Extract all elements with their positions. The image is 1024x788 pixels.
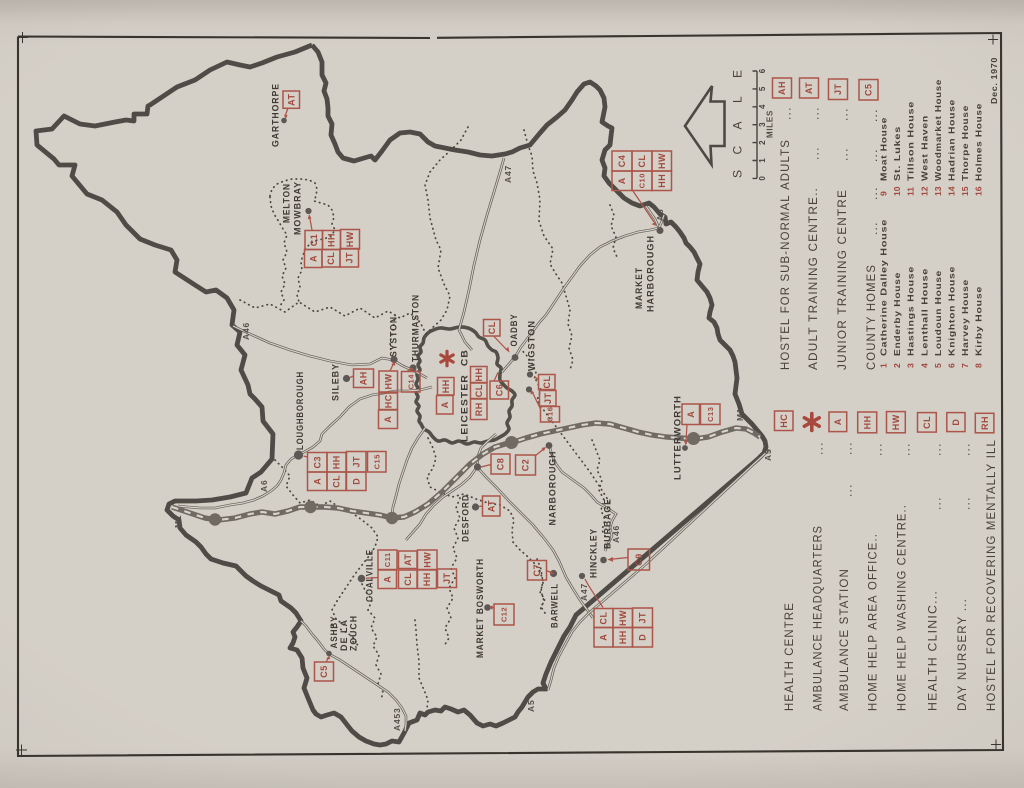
svg-text:D: D	[638, 634, 648, 641]
svg-text:CL: CL	[922, 416, 932, 429]
svg-text:CL: CL	[326, 252, 336, 265]
svg-text:12: 12	[919, 186, 929, 196]
svg-text:M1: M1	[173, 515, 183, 528]
svg-text:MARKET BOSWORTH: MARKET BOSWORTH	[475, 558, 485, 658]
svg-text:HH: HH	[422, 572, 432, 586]
svg-text:MOWBRAY: MOWBRAY	[293, 181, 303, 235]
svg-text:C: C	[731, 145, 745, 155]
svg-text:Loudoun House: Loudoun House	[933, 270, 943, 356]
svg-text:Catherine Dalley House: Catherine Dalley House	[879, 219, 889, 356]
svg-text:HW: HW	[618, 610, 628, 626]
svg-text:S: S	[731, 169, 745, 178]
svg-text:M1: M1	[735, 408, 745, 421]
svg-text:C3: C3	[312, 456, 322, 469]
svg-text:...: ...	[841, 441, 855, 455]
svg-text:...: ...	[808, 146, 822, 160]
svg-text:Moat House: Moat House	[879, 117, 889, 181]
svg-text:C11: C11	[383, 552, 392, 567]
svg-text:St. Lukes: St. Lukes	[892, 126, 902, 181]
svg-text:SYSTON: SYSTON	[389, 316, 399, 357]
svg-text:C1: C1	[309, 234, 319, 247]
svg-text:HEALTH CLINIC...: HEALTH CLINIC...	[926, 590, 940, 711]
svg-text:HEALTH CENTRE: HEALTH CENTRE	[782, 602, 796, 711]
svg-text:0: 0	[758, 176, 767, 181]
svg-text:HW: HW	[657, 153, 667, 169]
svg-text:HOSTEL FOR SUB-NORMAL ADULTS: HOSTEL FOR SUB-NORMAL ADULTS	[778, 139, 792, 370]
svg-text:...: ...	[808, 106, 822, 120]
svg-text:Harvey House: Harvey House	[960, 279, 970, 356]
svg-text:...: ...	[930, 442, 944, 456]
svg-text:AMBULANCE STATION: AMBULANCE STATION	[837, 568, 851, 711]
svg-text:Hastings House: Hastings House	[906, 266, 916, 356]
svg-text:AT: AT	[286, 93, 296, 105]
svg-text:THURMASTON: THURMASTON	[411, 294, 421, 362]
svg-text:2: 2	[758, 140, 767, 145]
svg-text:C10: C10	[638, 173, 647, 188]
svg-text:JT: JT	[442, 572, 452, 584]
svg-text:1: 1	[879, 363, 889, 368]
svg-text:RH: RH	[980, 416, 990, 430]
svg-text:C6: C6	[494, 384, 504, 397]
svg-text:NARBOROUGH: NARBOROUGH	[548, 451, 558, 526]
svg-text:HW: HW	[345, 231, 355, 247]
svg-text:A: A	[383, 416, 393, 423]
svg-text:WIGSTON: WIGSTON	[527, 320, 537, 371]
svg-text:...: ...	[959, 442, 973, 456]
svg-text:JUNIOR TRAINING CENTRE: JUNIOR TRAINING CENTRE	[835, 189, 849, 370]
svg-text:Kirby House: Kirby House	[974, 286, 984, 356]
svg-text:Lenthall House: Lenthall House	[919, 268, 929, 356]
svg-text:CL: CL	[599, 612, 609, 625]
svg-text:CL: CL	[332, 475, 342, 488]
svg-text:AT: AT	[804, 82, 814, 94]
svg-text:HW: HW	[422, 552, 432, 568]
svg-text:A: A	[312, 478, 322, 485]
svg-text:MARKET: MARKET	[634, 267, 644, 309]
svg-text:A47: A47	[579, 583, 589, 601]
svg-text:AH: AH	[777, 81, 787, 95]
svg-text:COALVILLE: COALVILLE	[365, 549, 375, 602]
svg-text:...: ...	[812, 441, 826, 455]
svg-text:15: 15	[960, 186, 970, 196]
svg-text:11: 11	[906, 187, 916, 196]
svg-text:A5: A5	[526, 700, 536, 712]
svg-text:A47: A47	[503, 165, 513, 183]
svg-text:...: ...	[841, 483, 855, 497]
svg-text:A: A	[599, 634, 609, 641]
svg-text:...: ...	[780, 106, 794, 120]
svg-text:HW: HW	[383, 374, 393, 390]
svg-text:6: 6	[758, 68, 767, 73]
svg-text:HH: HH	[474, 368, 484, 382]
svg-text:C14: C14	[406, 374, 415, 390]
svg-text:5: 5	[758, 86, 767, 91]
svg-text:AT: AT	[486, 500, 496, 512]
svg-text:4: 4	[758, 104, 767, 109]
svg-text:7: 7	[960, 363, 970, 368]
svg-text:CL: CL	[637, 155, 647, 168]
svg-text:OADBY: OADBY	[509, 314, 519, 347]
svg-text:HOME HELP AREA OFFICE..: HOME HELP AREA OFFICE..	[866, 533, 880, 711]
svg-text:A: A	[382, 576, 392, 583]
svg-text:13: 13	[933, 186, 943, 196]
svg-text:...: ...	[871, 442, 885, 456]
svg-text:DE LA: DE LA	[339, 619, 349, 651]
svg-text:C4: C4	[617, 155, 627, 168]
svg-text:MILES: MILES	[765, 110, 775, 138]
svg-text:JT: JT	[344, 252, 354, 264]
svg-text:CL: CL	[403, 573, 413, 586]
svg-text:14: 14	[947, 186, 957, 196]
svg-text:AH: AH	[359, 371, 369, 385]
svg-text:COUNTY HOMES: COUNTY HOMES	[864, 264, 878, 370]
svg-text:ADULT TRAINING CENTRE..: ADULT TRAINING CENTRE..	[806, 187, 820, 370]
svg-text:A: A	[731, 120, 745, 129]
svg-text:HOME HELP WASHING CENTRE..: HOME HELP WASHING CENTRE..	[895, 504, 909, 711]
svg-text:C15: C15	[372, 454, 381, 469]
svg-text:16: 16	[974, 186, 984, 196]
svg-text:...: ...	[837, 147, 851, 161]
svg-text:HC: HC	[779, 414, 789, 428]
svg-text:...: ...	[959, 496, 973, 510]
svg-text:A: A	[440, 401, 450, 408]
svg-text:A: A	[308, 255, 318, 262]
svg-text:3: 3	[906, 363, 916, 368]
svg-text:MELTON: MELTON	[282, 183, 292, 223]
svg-text:8: 8	[974, 363, 984, 368]
svg-text:DESFORD: DESFORD	[461, 494, 471, 542]
svg-text:HC: HC	[383, 394, 393, 408]
svg-text:CL: CL	[542, 376, 552, 389]
svg-text:SILEBY: SILEBY	[331, 363, 341, 401]
svg-text:JT: JT	[833, 83, 843, 95]
svg-text:ZOUCH: ZOUCH	[349, 615, 359, 651]
svg-text:CL: CL	[474, 384, 484, 397]
svg-text:Holmes House: Holmes House	[974, 103, 984, 181]
svg-text:West Haven: West Haven	[919, 115, 929, 181]
svg-text:5: 5	[933, 363, 943, 368]
svg-text:...: ...	[837, 107, 851, 121]
svg-text:Woodmarket House: Woodmarket House	[933, 79, 943, 181]
svg-text:HH: HH	[327, 233, 337, 247]
svg-text:4: 4	[919, 363, 929, 368]
svg-text:BURBAGE: BURBAGE	[603, 498, 613, 549]
svg-text:A6: A6	[259, 480, 269, 492]
svg-text:HH: HH	[862, 415, 872, 429]
svg-text:JT: JT	[543, 392, 553, 404]
svg-text:Dec. 1970: Dec. 1970	[989, 57, 999, 104]
svg-text:D: D	[351, 478, 361, 485]
svg-text:C8: C8	[496, 458, 506, 471]
svg-text:CL: CL	[487, 321, 497, 334]
svg-text:C9: C9	[634, 553, 644, 566]
svg-text:6: 6	[947, 363, 957, 368]
svg-text:...: ...	[930, 496, 944, 510]
svg-text:C5: C5	[864, 83, 874, 96]
svg-text:BARWELL: BARWELL	[550, 583, 560, 628]
svg-text:AT: AT	[403, 554, 413, 566]
svg-text:Tillson House: Tillson House	[906, 101, 916, 181]
svg-text:HH: HH	[657, 174, 667, 188]
svg-text:LEICESTER CB: LEICESTER CB	[460, 349, 470, 442]
svg-text:HH: HH	[332, 455, 342, 469]
svg-text:HINCKLEY: HINCKLEY	[589, 528, 599, 578]
svg-text:C12: C12	[500, 607, 509, 622]
svg-text:AMBULANCE HEADQUARTERS: AMBULANCE HEADQUARTERS	[811, 525, 825, 711]
svg-text:2: 2	[892, 363, 902, 368]
svg-text:LOUGHBOROUGH: LOUGHBOROUGH	[295, 371, 305, 450]
svg-text:A46: A46	[611, 525, 621, 543]
svg-text:C13: C13	[706, 407, 715, 422]
svg-text:D: D	[951, 419, 961, 426]
svg-text:A: A	[833, 418, 843, 425]
svg-text:L: L	[731, 95, 745, 103]
svg-text:9: 9	[879, 191, 889, 196]
svg-text:GARTHORPE: GARTHORPE	[271, 83, 281, 147]
svg-text:JT: JT	[638, 612, 648, 624]
svg-text:HW: HW	[891, 414, 901, 430]
svg-text:A46: A46	[241, 322, 251, 340]
svg-text:10: 10	[892, 186, 902, 196]
svg-text:Thorpe House: Thorpe House	[960, 105, 970, 181]
svg-text:A5: A5	[763, 449, 773, 461]
svg-text:LUTTERWORTH: LUTTERWORTH	[673, 395, 683, 480]
svg-text:Hadrian House: Hadrian House	[947, 99, 957, 181]
svg-text:C5: C5	[319, 665, 329, 678]
svg-text:Enderby House: Enderby House	[892, 272, 902, 356]
svg-text:1: 1	[758, 158, 767, 163]
svg-text:HH: HH	[441, 379, 451, 393]
svg-text:A453: A453	[392, 707, 402, 731]
svg-text:C2: C2	[521, 459, 531, 472]
svg-text:HARBOROUGH: HARBOROUGH	[646, 235, 656, 312]
svg-text:HOSTEL FOR RECOVERING MENTALLY: HOSTEL FOR RECOVERING MENTALLY ILL	[984, 439, 998, 711]
svg-text:RH: RH	[474, 402, 484, 416]
svg-text:HH: HH	[618, 630, 628, 644]
svg-text:A6: A6	[655, 209, 665, 221]
svg-text:...: ...	[899, 442, 913, 456]
svg-text:A: A	[686, 411, 696, 418]
svg-text:Knighton House: Knighton House	[947, 266, 957, 356]
svg-text:JT: JT	[351, 456, 361, 468]
svg-text:C16: C16	[546, 407, 555, 422]
svg-text:E: E	[731, 69, 745, 78]
svg-text:A: A	[617, 177, 627, 184]
svg-text:DAY NURSERY ...: DAY NURSERY ...	[955, 598, 969, 711]
svg-text:ASHBY: ASHBY	[329, 616, 339, 649]
svg-text:C7: C7	[532, 564, 542, 577]
